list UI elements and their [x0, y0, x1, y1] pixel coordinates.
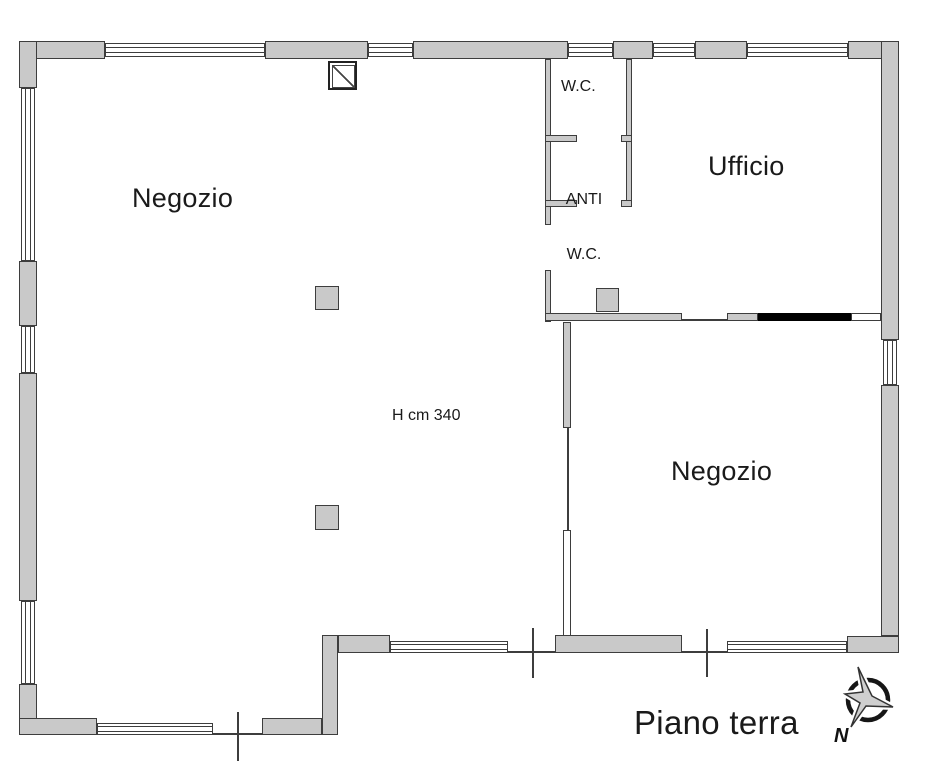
- wall-segment: [555, 635, 682, 653]
- compass-north-label: N: [834, 725, 849, 747]
- window: [883, 340, 897, 385]
- wall-segment: [727, 313, 758, 321]
- wall-segment: [338, 635, 390, 653]
- wall-segment: [881, 41, 899, 340]
- boundary-tick: [706, 629, 708, 677]
- wall-segment: [695, 41, 747, 59]
- wall-segment: [626, 59, 632, 207]
- wall-segment: [19, 718, 97, 735]
- wall-segment: [847, 636, 899, 653]
- door-opening-line: [567, 428, 569, 530]
- wall-segment: [545, 135, 577, 142]
- window: [568, 43, 613, 57]
- wall-segment: [851, 313, 881, 321]
- door-panel-black: [758, 313, 851, 321]
- flue-shaft-icon: [328, 61, 357, 90]
- wall-segment: [613, 41, 653, 59]
- window: [368, 43, 413, 57]
- boundary-tick: [532, 628, 534, 678]
- wall-segment: [881, 385, 899, 636]
- window: [390, 641, 508, 653]
- compass-north-icon: N: [826, 658, 910, 766]
- pillar: [315, 505, 339, 530]
- wall-segment: [322, 635, 338, 735]
- wall-segment: [563, 322, 571, 428]
- floor-title: Piano terra: [634, 704, 799, 742]
- window: [21, 326, 35, 373]
- door-opening-line: [682, 319, 727, 321]
- window: [653, 43, 695, 57]
- anti-wc-line2: W.C.: [551, 246, 617, 264]
- window: [105, 43, 265, 57]
- window: [747, 43, 848, 57]
- wall-segment: [262, 718, 322, 735]
- window: [97, 723, 213, 735]
- anti-wc-line1: ANTI: [551, 191, 617, 209]
- room-label-anti-wc: ANTI W.C.: [551, 154, 617, 301]
- window: [21, 601, 35, 684]
- wall-segment: [563, 530, 571, 636]
- wall-segment: [265, 41, 368, 59]
- wall-segment: [19, 373, 37, 601]
- room-label-negozio-right: Negozio: [671, 456, 772, 487]
- wall-segment: [19, 261, 37, 326]
- window: [727, 641, 847, 653]
- pillar: [315, 286, 339, 310]
- window: [21, 88, 35, 261]
- wall-segment: [19, 41, 37, 88]
- wall-segment: [413, 41, 568, 59]
- room-label-wc: W.C.: [561, 78, 596, 96]
- wall-segment: [545, 313, 682, 321]
- wall-segment: [621, 135, 632, 142]
- floor-plan: Negozio W.C. ANTI W.C. Ufficio Negozio H…: [0, 0, 933, 768]
- room-label-ufficio: Ufficio: [708, 151, 785, 182]
- height-note: H cm 340: [392, 407, 460, 425]
- boundary-tick: [237, 712, 239, 761]
- room-label-negozio-left: Negozio: [132, 183, 233, 214]
- wall-segment: [621, 200, 632, 207]
